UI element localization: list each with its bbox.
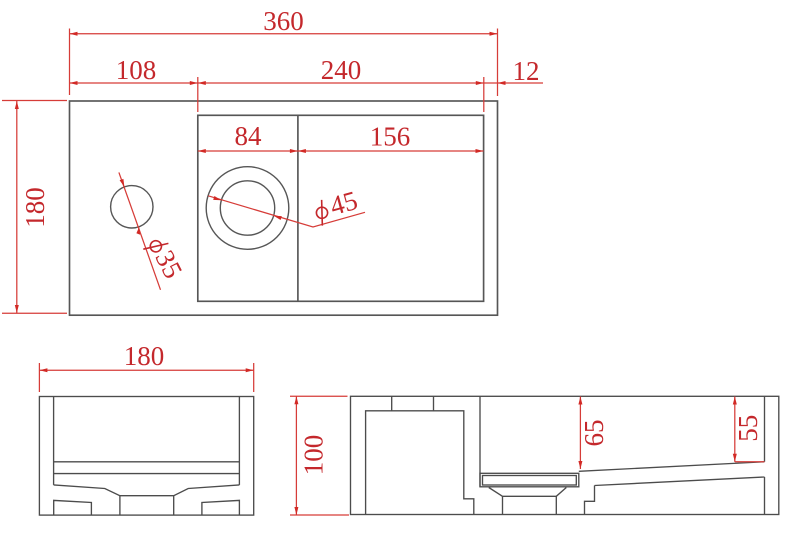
- svg-text:12: 12: [513, 56, 540, 86]
- svg-text:55: 55: [733, 415, 763, 442]
- svg-text:65: 65: [579, 420, 609, 447]
- svg-text:156: 156: [370, 122, 411, 152]
- svg-text:180: 180: [124, 341, 165, 371]
- svg-text:100: 100: [299, 435, 329, 476]
- svg-text:108: 108: [116, 55, 157, 85]
- svg-text:360: 360: [263, 6, 304, 36]
- svg-text:240: 240: [321, 55, 362, 85]
- svg-text:84: 84: [235, 121, 263, 151]
- svg-text:180: 180: [20, 187, 50, 228]
